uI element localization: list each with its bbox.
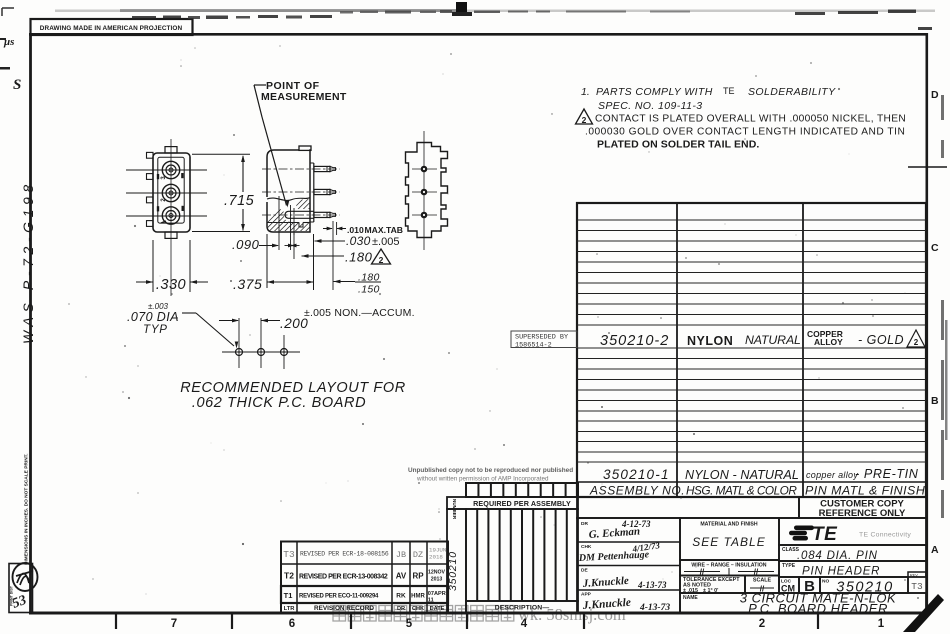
svg-text:DR: DR (581, 521, 588, 527)
svg-text:REVISED PER ECO-11-009294: REVISED PER ECO-11-009294 (299, 594, 379, 600)
svg-text:4-13-73: 4-13-73 (637, 580, 667, 590)
svg-text:350210-2: 350210-2 (600, 333, 669, 349)
svg-text:5: 5 (406, 618, 413, 630)
svg-text:μs: μs (3, 36, 14, 48)
svg-text:REQUIRED PER ASSEMBLY: REQUIRED PER ASSEMBLY (473, 499, 571, 508)
svg-text:DIMENSIONS IN INCHES. DO NOT: DIMENSIONS IN INCHES. DO NOT SCALE PRINT… (24, 454, 30, 565)
svg-text:TE: TE (723, 86, 735, 96)
svg-text:07APR: 07APR (428, 591, 446, 597)
svg-text:TE: TE (812, 524, 838, 545)
svg-text:NYLON - NATURAL: NYLON - NATURAL (685, 468, 799, 482)
svg-text:REVISED PER ECR-13-008342: REVISED PER ECR-13-008342 (299, 574, 388, 581)
svg-text:2: 2 (914, 338, 919, 347)
svg-text:DZ: DZ (413, 550, 423, 560)
svg-text:RECOMMENDED LAYOUT FOR: RECOMMENDED LAYOUT FOR (180, 380, 406, 396)
svg-text:1: 1 (878, 618, 885, 630)
svg-text:6: 6 (289, 618, 295, 630)
svg-text:.070 DIA: .070 DIA (127, 310, 179, 324)
svg-text:T2: T2 (284, 571, 294, 581)
svg-text:350210-1: 350210-1 (603, 467, 670, 482)
svg-text:without written permission of: without written permission of AMP Incorp… (416, 476, 549, 483)
svg-text:4-13-73: 4-13-73 (639, 603, 670, 613)
svg-text:WAS P-72-G198: WAS P-72-G198 (20, 180, 36, 344)
svg-text:NUMBER: NUMBER (452, 499, 457, 520)
svg-text:DM Pettenhauge: DM Pettenhauge (578, 549, 650, 564)
svg-text:REVISED PER ECR-18-008156: REVISED PER ECR-18-008156 (300, 551, 389, 558)
svg-text:G. Eckman: G. Eckman (588, 525, 640, 541)
svg-text:4: 4 (521, 618, 528, 630)
svg-text:S: S (13, 77, 21, 93)
svg-text:CHK: CHK (412, 606, 424, 612)
svg-text:DR: DR (397, 606, 405, 612)
svg-text:RK: RK (396, 593, 406, 600)
svg-text:DRAWING MADE IN AMERICAN PROJE: DRAWING MADE IN AMERICAN PROJECTION (40, 25, 183, 32)
svg-text:J.Knuckle: J.Knuckle (581, 575, 629, 590)
svg-text:Unpublished copy not to be rep: Unpublished copy not to be reproduced no… (408, 467, 573, 474)
svg-text:2: 2 (759, 618, 765, 630)
svg-text:PLATED ON SOLDER TAIL END.: PLATED ON SOLDER TAIL END. (597, 139, 759, 151)
svg-text:ALLOY: ALLOY (814, 337, 843, 347)
svg-text:1.: 1. (581, 86, 590, 98)
svg-text:NYLON: NYLON (687, 334, 733, 348)
svg-text:- PRE-TIN: - PRE-TIN (855, 467, 919, 481)
svg-text:±.005 NON.—ACCUM.: ±.005 NON.—ACCUM. (304, 307, 415, 319)
svg-text:CONTACT IS PLATED OVERALL WITH: CONTACT IS PLATED OVERALL WITH .000050 N… (595, 114, 906, 125)
svg-text:SPEC. NO. 109-11-3: SPEC. NO. 109-11-3 (598, 100, 702, 112)
svg-text:.375: .375 (233, 276, 262, 292)
svg-text:±.005: ±.005 (372, 236, 399, 248)
svg-text:DE: DE (581, 568, 588, 574)
svg-text:.330: .330 (156, 277, 186, 293)
svg-text:.030: .030 (346, 234, 371, 248)
svg-text:SCALE: SCALE (753, 578, 772, 584)
svg-text:LTR: LTR (284, 606, 296, 612)
svg-text:TE Connectivity: TE Connectivity (859, 532, 911, 539)
svg-text:2: 2 (379, 255, 384, 265)
svg-text:SUPERSEDED BY: SUPERSEDED BY (515, 334, 568, 342)
svg-text:C: C (931, 242, 939, 254)
svg-text:MATERIAL AND FINISH: MATERIAL AND FINISH (700, 522, 758, 528)
svg-text:A: A (931, 544, 939, 556)
svg-text:ASSEMBLY NO.: ASSEMBLY NO. (589, 484, 685, 498)
svg-text:AV: AV (396, 572, 407, 581)
svg-text:PIN HEADER: PIN HEADER (802, 566, 880, 578)
svg-text:11: 11 (428, 598, 434, 604)
svg-text:HMR: HMR (411, 594, 425, 600)
svg-text:- GOLD: - GOLD (858, 333, 904, 347)
svg-text:TYPE: TYPE (782, 563, 796, 569)
svg-text:CHK: CHK (581, 544, 592, 550)
svg-text:D: D (931, 89, 939, 101)
svg-text:B: B (931, 395, 939, 407)
svg-text:SEE TABLE: SEE TABLE (692, 535, 765, 549)
svg-text:DESCRIPTION—: DESCRIPTION— (495, 605, 550, 612)
svg-text:RP: RP (412, 572, 424, 581)
svg-text:.150: .150 (358, 284, 380, 296)
svg-text:.090: .090 (232, 237, 260, 252)
svg-text:.715: .715 (224, 193, 255, 209)
svg-text:NO: NO (822, 579, 829, 585)
svg-text:DATE: DATE (430, 606, 445, 612)
svg-text:.180: .180 (345, 250, 373, 265)
svg-text:APP: APP (581, 592, 592, 598)
svg-text:19JUN: 19JUN (429, 547, 447, 554)
svg-text:2: 2 (582, 115, 587, 125)
svg-text:JB: JB (396, 550, 406, 560)
svg-text:PARTS COMPLY WITH: PARTS COMPLY WITH (596, 86, 713, 98)
svg-text:TYP: TYP (143, 324, 168, 336)
svg-text:.000030 GOLD OVER CONTACT LENG: .000030 GOLD OVER CONTACT LENGTH INDICAT… (585, 127, 905, 138)
svg-text:.062 THICK P.C. BOARD: .062 THICK P.C. BOARD (192, 395, 366, 411)
svg-text:12NOV: 12NOV (428, 570, 446, 576)
svg-text:copper alloy: copper alloy (806, 470, 858, 480)
svg-text:T3: T3 (283, 549, 295, 560)
svg-text:PRINT DIST: PRINT DIST (10, 585, 14, 606)
svg-text:REV: REV (910, 574, 918, 578)
svg-text:2013: 2013 (431, 577, 443, 583)
svg-text:1586514-2: 1586514-2 (515, 342, 552, 350)
svg-text:HSG. MATL & COLOR: HSG. MATL & COLOR (686, 484, 797, 498)
svg-text:7: 7 (171, 618, 177, 630)
svg-text:NAME: NAME (683, 595, 698, 601)
svg-text:SOLDERABILITY: SOLDERABILITY (748, 86, 836, 98)
svg-text:NATURAL: NATURAL (745, 333, 801, 347)
svg-text:PIN MATL & FINISH: PIN MATL & FINISH (805, 484, 925, 498)
svg-text:2018: 2018 (429, 554, 443, 561)
svg-text:T3: T3 (911, 581, 923, 592)
svg-text:T1: T1 (284, 591, 293, 600)
svg-text:MEASUREMENT: MEASUREMENT (261, 91, 347, 103)
svg-text:REVISION RECORD: REVISION RECORD (314, 605, 374, 612)
